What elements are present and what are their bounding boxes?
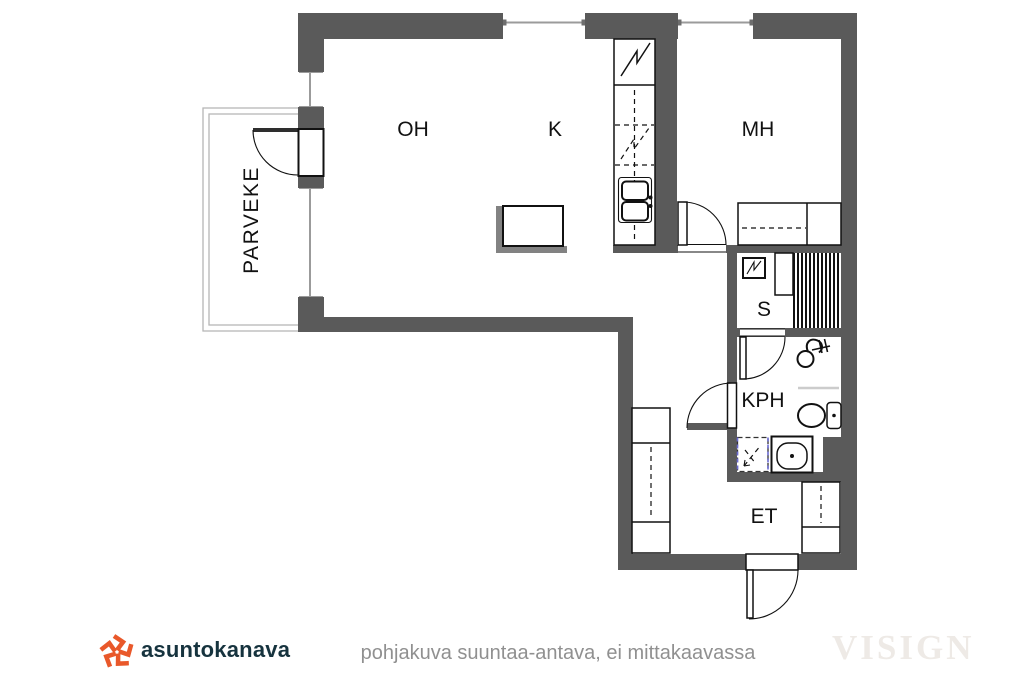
kitchen-island-icon [496,206,567,253]
window-icon [678,13,753,39]
entry-door-icon [746,554,798,619]
wall-kitchen-bedroom [655,39,677,253]
room-label-balcony: PARVEKE [240,166,263,274]
room-label-kitchen: K [548,118,562,141]
bathroom-door-icon [687,383,737,430]
logo-text: asuntokanava [141,637,290,663]
washing-machine-icon [738,438,769,472]
bedroom-door-icon [678,202,726,253]
wall-hall-left [618,317,633,570]
walls [298,13,857,570]
floor-plan-page: OH K MH S KPH ET PARVEKE asuntokanava po… [0,0,1027,688]
kitchen-fixtures [614,39,655,245]
watermark-text: VISIGN [832,628,974,668]
room-label-bedroom: MH [742,118,775,141]
wall-bathroom-left [727,253,737,473]
window-icon [298,188,324,297]
wall-mid-horizontal [613,245,857,253]
wall-oh-bottom [298,317,633,332]
balcony-door-icon [253,128,324,176]
disclaimer-text: pohjakuva suuntaa-antava, ei mittakaavas… [308,642,808,665]
window-icon [298,72,324,107]
bathroom-sink-icon [772,437,813,473]
room-label-sauna: S [757,298,771,321]
sauna-bench-icon [775,253,793,295]
room-label-living-room: OH [397,118,429,141]
sauna-bench-slats-icon [794,253,838,328]
duct-block [823,437,841,472]
toilet-icon [798,403,841,429]
wardrobe-icon [802,482,840,553]
room-label-bathroom: KPH [741,389,784,412]
room-label-entry: ET [751,505,778,528]
wall-right [841,13,857,570]
bed-icon [738,203,841,245]
wardrobe-icon [632,408,670,553]
window-icon [503,13,585,39]
shower-icon [798,339,831,367]
floor-plan: OH K MH S KPH ET PARVEKE [0,0,1027,688]
sauna-stove-icon [743,258,765,278]
sauna-door-icon [740,329,785,380]
wall-bottom [618,554,857,570]
windows [298,13,753,297]
logo-pinwheel-icon [101,636,134,668]
